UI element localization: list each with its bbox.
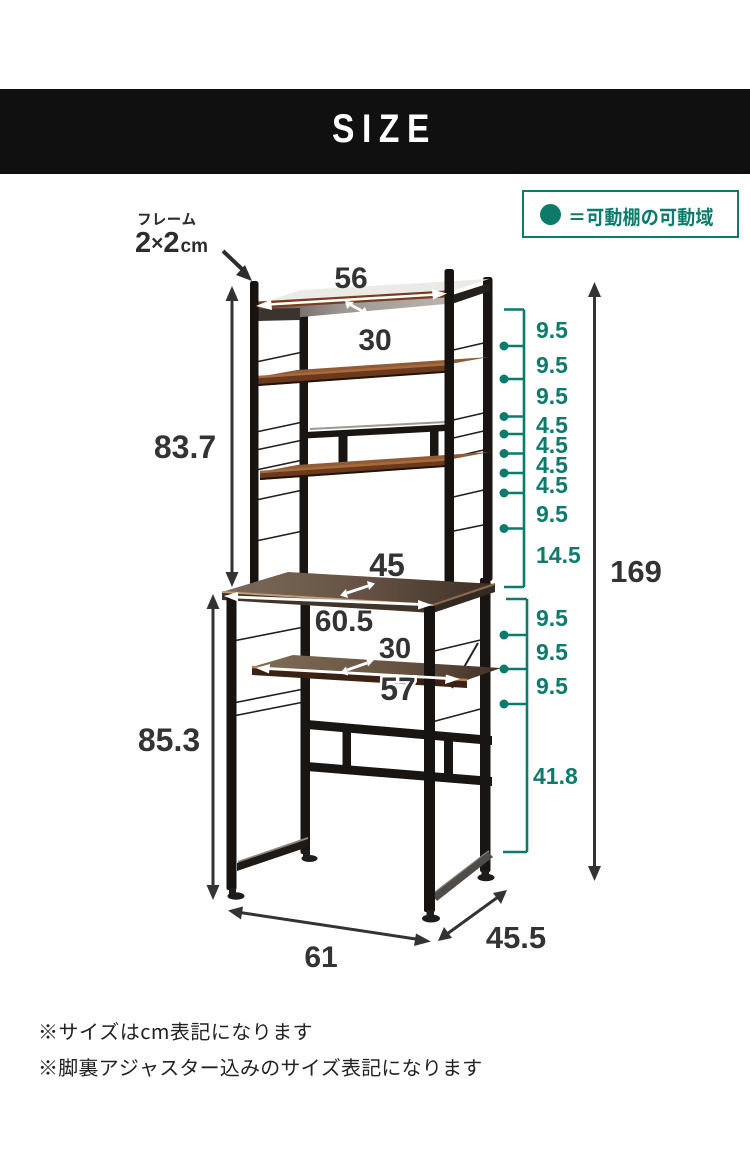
svg-text:30: 30: [379, 633, 411, 665]
svg-text:2×2cm: 2×2cm: [135, 227, 208, 259]
svg-text:45.5: 45.5: [486, 920, 546, 955]
svg-text:4.5: 4.5: [536, 472, 568, 498]
svg-text:56: 56: [334, 262, 367, 295]
svg-text:9.5: 9.5: [536, 501, 568, 527]
svg-text:9.5: 9.5: [536, 673, 568, 699]
svg-text:85.3: 85.3: [138, 722, 200, 758]
svg-text:14.5: 14.5: [536, 542, 581, 568]
svg-text:9.5: 9.5: [536, 639, 568, 665]
svg-text:9.5: 9.5: [536, 605, 568, 631]
svg-text:9.5: 9.5: [536, 352, 568, 378]
svg-text:41.8: 41.8: [533, 763, 578, 789]
svg-text:30: 30: [358, 324, 391, 357]
svg-text:83.7: 83.7: [154, 429, 216, 465]
svg-text:61: 61: [304, 941, 337, 974]
svg-text:9.5: 9.5: [536, 383, 568, 409]
svg-text:45: 45: [369, 547, 405, 583]
svg-text:169: 169: [610, 554, 662, 589]
svg-text:60.5: 60.5: [315, 605, 373, 638]
svg-text:9.5: 9.5: [536, 317, 568, 343]
